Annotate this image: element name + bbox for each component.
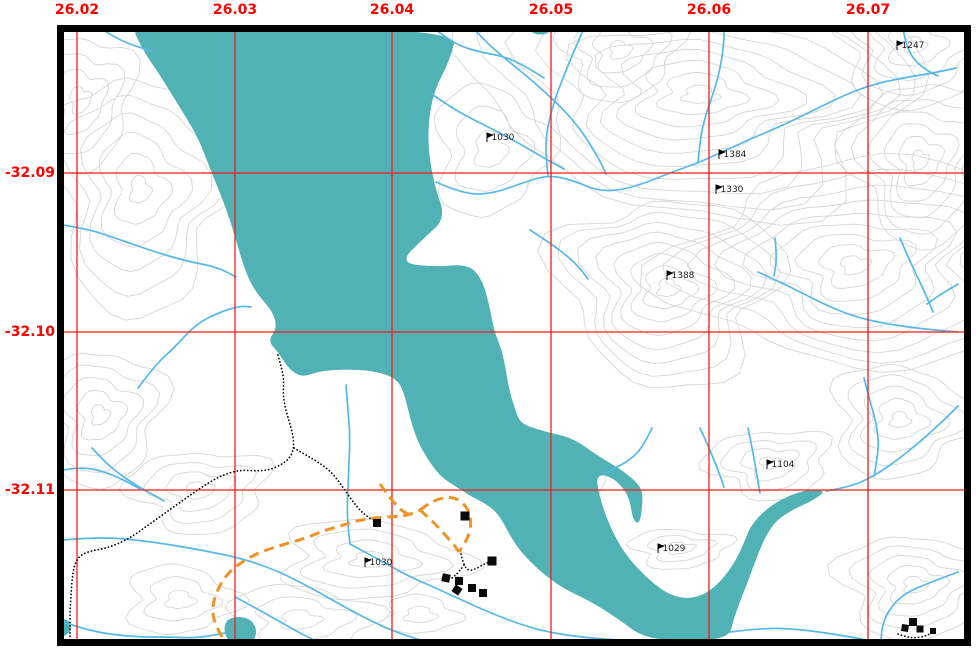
contour-line bbox=[819, 245, 895, 289]
grid-label-lat: -32.10 bbox=[0, 323, 55, 341]
spot-height: 1384 bbox=[719, 150, 747, 160]
contour-line bbox=[635, 60, 779, 127]
stream-line bbox=[64, 468, 140, 489]
contour-line bbox=[538, 201, 791, 387]
grid-label-lon: 26.06 bbox=[679, 1, 739, 19]
contour-line bbox=[99, 132, 193, 247]
building-marker bbox=[451, 584, 462, 595]
contour-line bbox=[835, 85, 964, 250]
spot-height-label: 1330 bbox=[721, 185, 744, 195]
building-marker bbox=[479, 589, 487, 597]
stream-line bbox=[826, 406, 958, 491]
contour-line bbox=[64, 70, 109, 135]
contour-line bbox=[70, 87, 92, 115]
building-marker bbox=[917, 626, 924, 633]
spot-height: 1030 bbox=[487, 133, 515, 143]
spot-height: 1029 bbox=[658, 544, 686, 554]
map-frame: 12471030138413301388110410291030 bbox=[57, 25, 971, 646]
contour-line bbox=[840, 256, 872, 275]
stream-line bbox=[730, 628, 862, 639]
stream-line bbox=[748, 428, 760, 493]
contour-line bbox=[609, 41, 633, 60]
spot-height-label: 1030 bbox=[370, 558, 393, 568]
contour-line bbox=[887, 566, 950, 604]
contour-line bbox=[874, 398, 931, 439]
grid-label-lon: 26.05 bbox=[521, 1, 581, 19]
contour-line bbox=[164, 590, 197, 608]
contour-line bbox=[452, 32, 929, 225]
contour-line bbox=[455, 106, 535, 191]
spot-height-label: 1384 bbox=[724, 150, 747, 160]
stream-line bbox=[698, 32, 724, 163]
spot-height-label: 1029 bbox=[663, 544, 686, 554]
contour-line bbox=[889, 411, 912, 427]
grid-label-lat: -32.11 bbox=[0, 481, 55, 499]
contour-line bbox=[912, 150, 930, 170]
spot-height: 1030 bbox=[365, 558, 393, 568]
building-marker bbox=[441, 573, 450, 582]
grid-label-lon: 26.04 bbox=[362, 1, 422, 19]
pond-polygon bbox=[225, 617, 257, 639]
topo-map-export: 26.0226.0326.0426.0526.0626.07 -32.09-32… bbox=[0, 0, 976, 665]
contour-line bbox=[720, 441, 816, 492]
contour-line bbox=[830, 364, 964, 479]
building-marker bbox=[901, 624, 909, 632]
contour-line bbox=[848, 375, 964, 466]
building-marker bbox=[455, 577, 463, 585]
contour-line bbox=[656, 73, 750, 115]
stream-line bbox=[138, 306, 251, 388]
stream-line bbox=[546, 32, 585, 175]
contour-line bbox=[381, 594, 467, 633]
road-dashed bbox=[420, 498, 471, 553]
contour-line bbox=[77, 391, 127, 440]
grid-label-lon: 26.02 bbox=[47, 1, 107, 19]
contour-line bbox=[129, 175, 152, 202]
contour-line bbox=[403, 606, 439, 622]
spot-height-label: 1388 bbox=[672, 271, 695, 281]
stream-line bbox=[774, 238, 776, 276]
building-marker bbox=[373, 519, 381, 527]
building-marker bbox=[468, 584, 476, 592]
grid-label-lon: 26.07 bbox=[838, 1, 898, 19]
contour-line bbox=[869, 555, 964, 616]
contour-line bbox=[91, 405, 111, 425]
grid-label-lat: -32.09 bbox=[0, 164, 55, 182]
spot-height: 1247 bbox=[897, 41, 924, 51]
contour-line bbox=[255, 597, 357, 639]
map-layers: 12471030138413301388110410291030 bbox=[64, 32, 964, 639]
roads-layer bbox=[213, 484, 471, 637]
road-dashed bbox=[380, 484, 412, 515]
contour-line bbox=[795, 234, 916, 301]
trail-dotted bbox=[898, 632, 933, 638]
spot-height-label: 1104 bbox=[772, 460, 795, 470]
grid-label-lon: 26.03 bbox=[205, 1, 265, 19]
spot-height: 1330 bbox=[716, 185, 744, 195]
contour-line bbox=[574, 32, 672, 87]
road-dashed bbox=[420, 510, 459, 552]
contour-line bbox=[64, 377, 144, 456]
contour-line bbox=[144, 577, 223, 621]
contour-line bbox=[477, 32, 916, 210]
map-canvas[interactable]: 12471030138413301388110410291030 bbox=[64, 32, 964, 639]
stream-line bbox=[530, 230, 588, 279]
spot-height-label: 1030 bbox=[492, 133, 515, 143]
contour-line bbox=[593, 32, 653, 73]
contour-line bbox=[114, 153, 172, 224]
trail-dotted bbox=[70, 355, 294, 639]
spot-height-label: 1247 bbox=[902, 41, 925, 51]
building-marker bbox=[461, 512, 470, 521]
spot-height: 1388 bbox=[667, 271, 695, 281]
contour-line bbox=[81, 113, 212, 272]
spot-height: 1104 bbox=[767, 460, 795, 470]
building-marker bbox=[909, 618, 917, 626]
trail-dotted bbox=[461, 554, 490, 570]
building-marker bbox=[930, 628, 936, 634]
building-marker bbox=[488, 557, 497, 566]
contour-line bbox=[558, 212, 781, 376]
trail-dotted bbox=[294, 448, 371, 519]
